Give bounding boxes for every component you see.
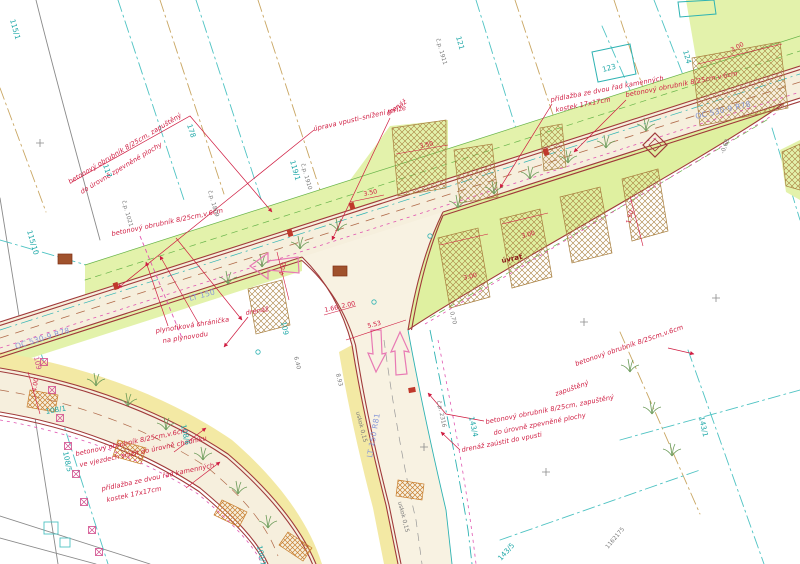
cad-drawing-canvas: betonový obrubník 8/25cm, zapuštěnýdo úr… (0, 0, 800, 564)
parcel-178: 178 (185, 123, 198, 139)
parcel-115-1: 115/1 (8, 18, 22, 40)
elev-6-40: 6.40 (292, 356, 301, 370)
parcel-119-1: 119/1 (288, 159, 302, 181)
parcel-143-5: 143/5 (496, 541, 517, 562)
parcel-143-4: 143/4 (467, 416, 480, 439)
note-curb-east-line1: betonový obrubník 8/25cm,v.6cm (574, 323, 684, 368)
parcel-cp-1021: č.p. 1021 (120, 200, 134, 228)
parcel-124: 124 (681, 49, 694, 65)
survey-coordinate: 1162175 (605, 526, 626, 550)
dim-1-66: 1.66 (324, 304, 339, 314)
parcel-123: 123 (601, 62, 617, 74)
parcel-143-1: 143/1 (697, 416, 710, 438)
parcel-121: 121 (454, 35, 466, 51)
parcel-115-10: 115/10 (25, 229, 41, 256)
parcel-108-5: 108/5 (61, 451, 74, 473)
elev-8-93: 8.93 (334, 373, 343, 387)
note-curb-nw-line1: betonový obrubník 8/25cm, zapuštěný (67, 111, 183, 185)
elev-0-70: 0,70 (448, 311, 457, 325)
site-plan-svg: betonový obrubník 8/25cm, zapuštěnýdo úr… (0, 0, 800, 564)
parcel-cp-1911: č.p. 1911 (434, 38, 448, 66)
parcel-109-b: 109 (279, 321, 291, 337)
note-curb-east-line2: zapuštěný (553, 379, 590, 398)
